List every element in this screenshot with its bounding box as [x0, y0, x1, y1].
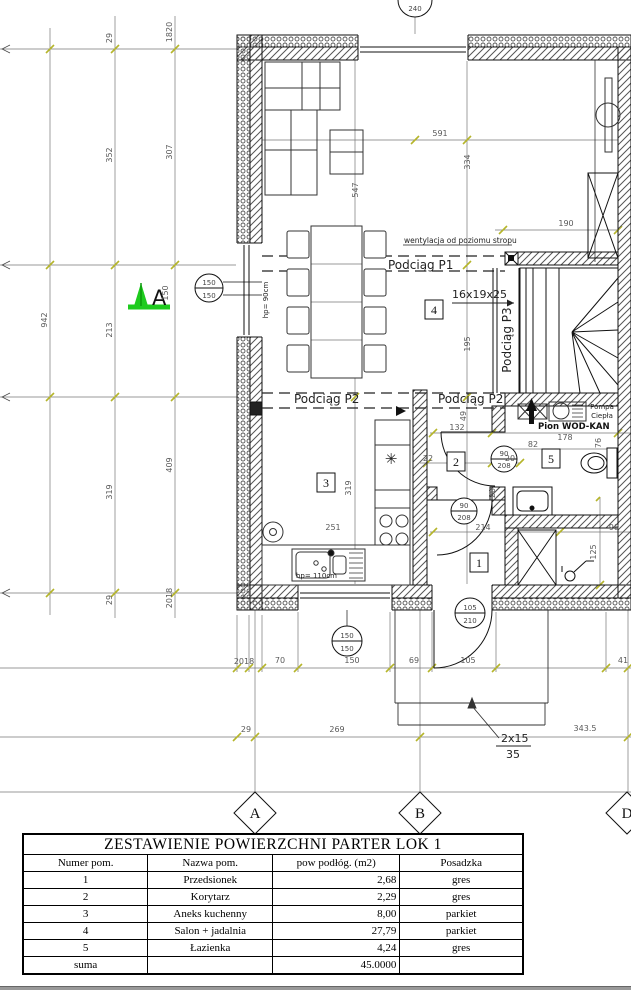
section-marker-a: A 150	[128, 283, 170, 310]
room-5-number: 5	[548, 452, 554, 466]
dim-213: 213	[105, 322, 114, 337]
dim-942: 942	[40, 312, 49, 327]
sum-empty-cell	[400, 957, 523, 975]
beam-p2-left-label: Podciąg P2	[294, 392, 359, 406]
window-tag-top-value: 240	[408, 5, 421, 13]
beam-p1-label: Podciąg P1	[388, 258, 453, 272]
entrance-steps	[395, 610, 548, 738]
dim-409: 409	[165, 457, 174, 472]
room-area-cell: 27,79	[273, 923, 400, 940]
sheet-border-line	[0, 986, 631, 990]
window-tag-left-top: 150	[202, 279, 215, 287]
drawing-sheet: Podciąg P1 Podciąg P2 Podciąg P2 Podciąg…	[0, 0, 631, 1000]
floor-drain	[263, 522, 283, 542]
room1-door-width: 90	[460, 502, 469, 510]
hob-symbol: ✳	[385, 450, 398, 468]
table-header-row: Numer pom. Nazwa pom. pow podłóg. (m2) P…	[23, 855, 523, 872]
sum-value-cell: 45.0000	[273, 957, 400, 975]
room-1-number: 1	[476, 556, 482, 570]
window-tag-bottom-bottom: 150	[340, 645, 353, 653]
dim-c29: 29	[241, 725, 251, 734]
room-floor-cell: parkiet	[400, 906, 523, 923]
dim-307: 307	[165, 144, 174, 159]
dim-178: 178	[557, 433, 572, 442]
coffee-table	[330, 130, 363, 174]
dim-b105: 105	[460, 656, 475, 665]
table-row: 2 Korytarz 2,29 gres	[23, 889, 523, 906]
dim-20a: 20	[505, 454, 515, 463]
heat-pump-label: Pompa Ciepła	[590, 403, 614, 420]
dining-table	[287, 226, 386, 378]
room-4-number: 4	[431, 303, 437, 317]
left-dimensions: 29 1820 352 307 942 213 319 409 29 2018	[40, 22, 174, 608]
entry-door-width: 105	[463, 604, 476, 612]
shaft-room1	[518, 530, 556, 585]
room-number-cell: 4	[23, 923, 148, 940]
axis-d-label: D	[622, 806, 631, 822]
room-area-cell: 8,00	[273, 906, 400, 923]
room-floor-cell: parkiet	[400, 923, 523, 940]
col-header-floor: Posadzka	[400, 855, 523, 872]
dim-132: 132	[449, 423, 464, 432]
table-row: 5 Łazienka 4,24 gres	[23, 940, 523, 957]
table-title: ZESTAWIENIE POWIERZCHNI PARTER LOK 1	[23, 834, 523, 855]
room-name-cell: Łazienka	[148, 940, 273, 957]
room-area-cell: 2,68	[273, 872, 400, 889]
ventilation-text: wentylacja od poziomu stropu	[404, 236, 517, 245]
room-number-cell: 2	[23, 889, 148, 906]
sum-empty-cell	[148, 957, 273, 975]
dim-22: 22	[423, 454, 433, 463]
bathroom-sink	[513, 487, 552, 515]
dim-82: 82	[528, 440, 538, 449]
room-number-cell: 3	[23, 906, 148, 923]
heat-pump-line2: Ciepła	[591, 412, 613, 420]
interior-dimensions: 591 334 547 190 195 132 178 82 22 20 20 …	[325, 129, 619, 560]
dim-251: 251	[325, 523, 340, 532]
dim-20b: 20	[488, 488, 497, 498]
beam-p3-label: Podciąg P3	[500, 307, 514, 372]
beam-p2-right-label: Podciąg P2	[438, 392, 503, 406]
entry-door-height: 210	[463, 617, 476, 625]
dim-319-kitchen: 319	[344, 480, 353, 495]
dim-b2018: 2018	[234, 657, 254, 666]
table-row: 1 Przedsionek 2,68 gres	[23, 872, 523, 889]
room-name-cell: Przedsionek	[148, 872, 273, 889]
chimney-shaft	[588, 173, 618, 258]
section-dim: 150	[161, 285, 170, 300]
step-fraction: 2x15 35	[496, 732, 531, 761]
dim-195: 195	[463, 336, 472, 351]
room-area-cell: 4,24	[273, 940, 400, 957]
step-count-label: 2x15	[501, 732, 529, 745]
dim-76: 76	[594, 438, 603, 448]
dim-547: 547	[351, 182, 360, 197]
window-tag-bottom-top: 150	[340, 632, 353, 640]
dim-98: 98	[609, 523, 619, 532]
riser-label: Pion WOD-KAN	[538, 422, 610, 432]
stove-burners	[380, 515, 408, 545]
heat-pump-line1: Pompa	[590, 403, 614, 411]
table-row: 3 Aneks kuchenny 8,00 parkiet	[23, 906, 523, 923]
table-title-row: ZESTAWIENIE POWIERZCHNI PARTER LOK 1	[23, 834, 523, 855]
dim-b150: 150	[344, 656, 359, 665]
dim-319-left: 319	[105, 484, 114, 499]
dim-29-bottom: 29	[105, 595, 114, 605]
area-summary-table: ZESTAWIENIE POWIERZCHNI PARTER LOK 1 Num…	[22, 833, 524, 975]
room-3-number: 3	[323, 476, 329, 490]
room-name-cell: Aneks kuchenny	[148, 906, 273, 923]
table-sum-row: suma 45.0000	[23, 957, 523, 975]
sum-label-cell: suma	[23, 957, 148, 975]
room1-door-height: 208	[457, 514, 470, 522]
dim-352: 352	[105, 147, 114, 162]
room-floor-cell: gres	[400, 940, 523, 957]
stair-spec: 16x19x25	[452, 288, 514, 307]
living-window-sill-label: hp= 90cm	[262, 282, 270, 319]
sofa	[265, 62, 340, 195]
toilet	[581, 448, 617, 478]
room-name-cell: Salon + jadalnia	[148, 923, 273, 940]
room-number-cell: 1	[23, 872, 148, 889]
dim-190: 190	[558, 219, 573, 228]
axis-markers	[234, 792, 631, 834]
dim-29-top: 29	[105, 33, 114, 43]
dim-214: 214	[475, 523, 490, 532]
dim-1820: 1820	[165, 22, 174, 42]
axis-b-label: B	[415, 806, 425, 822]
room-floor-cell: gres	[400, 872, 523, 889]
col-header-area: pow podłóg. (m2)	[273, 855, 400, 872]
room-number-cell: 5	[23, 940, 148, 957]
dim-b69: 69	[409, 656, 419, 665]
lamp-symbol	[562, 561, 594, 581]
room-name-cell: Korytarz	[148, 889, 273, 906]
axis-a-label: A	[250, 806, 261, 822]
dim-b41: 41	[618, 656, 628, 665]
col-header-name: Nazwa pom.	[148, 855, 273, 872]
dim-125: 125	[589, 544, 598, 559]
kitchen-window-sill-label: hp= 110cm	[296, 572, 337, 580]
dim-c3435: 343.5	[574, 724, 597, 733]
room-area-cell: 2,29	[273, 889, 400, 906]
dim-591: 591	[432, 129, 447, 138]
stair-spec-label: 16x19x25	[452, 288, 507, 301]
dim-49: 49	[459, 411, 468, 421]
dim-c269: 269	[329, 725, 344, 734]
dim-334: 334	[463, 154, 472, 169]
bath-door-height: 208	[497, 462, 510, 470]
step-depth-label: 35	[506, 748, 520, 761]
room-floor-cell: gres	[400, 889, 523, 906]
dim-b70: 70	[275, 656, 285, 665]
dim-2018-left: 2018	[165, 588, 174, 608]
col-header-number: Numer pom.	[23, 855, 148, 872]
window-tag-left-bottom: 150	[202, 292, 215, 300]
room-2-number: 2	[453, 455, 459, 469]
table-row: 4 Salon + jadalnia 27,79 parkiet	[23, 923, 523, 940]
floor-plan-canvas: Podciąg P1 Podciąg P2 Podciąg P2 Podciąg…	[0, 0, 631, 835]
